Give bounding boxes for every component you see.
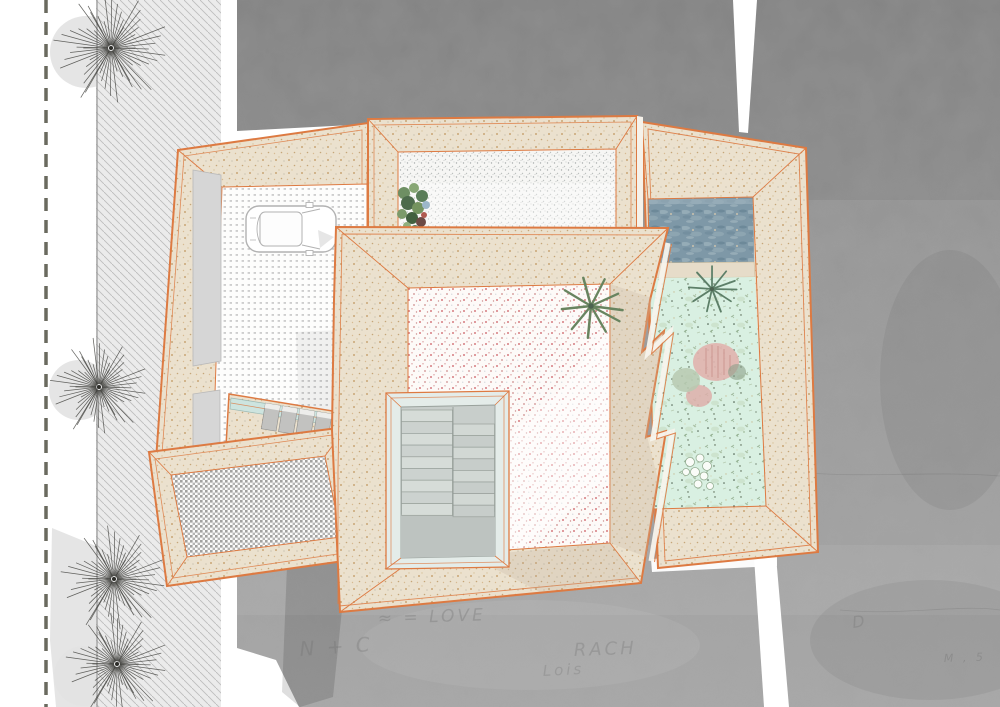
car-top-view	[246, 203, 336, 256]
pool-edge-highlight	[649, 199, 753, 204]
car-mirror	[306, 203, 313, 208]
graffiti-text: ≈ = LOVE	[377, 605, 486, 629]
car-mirror	[306, 251, 313, 256]
graffiti-text: M , 5	[944, 651, 986, 665]
stairwell	[386, 391, 509, 569]
garage-door-panel	[193, 170, 221, 366]
site-plan-svg: ≈ = LOVEN + CRACHLoisDM , 5	[0, 0, 1000, 707]
graffiti-text: Lois	[542, 660, 584, 680]
block-top-courtyard	[368, 116, 637, 233]
graffiti-text: N + C	[299, 632, 374, 661]
stair-landing	[401, 512, 495, 558]
shrub-small	[728, 364, 746, 380]
graffiti-text: RACH	[573, 638, 637, 661]
block-gap-seam	[637, 116, 643, 232]
graffiti-text: D	[851, 611, 869, 632]
block-main-courtyard	[332, 227, 668, 612]
garage-door-panel	[193, 390, 220, 448]
site-plan-stage: ≈ = LOVEN + CRACHLoisDM , 5	[0, 0, 1000, 707]
sage-plant	[672, 368, 700, 392]
floor-light-patch	[400, 183, 614, 230]
